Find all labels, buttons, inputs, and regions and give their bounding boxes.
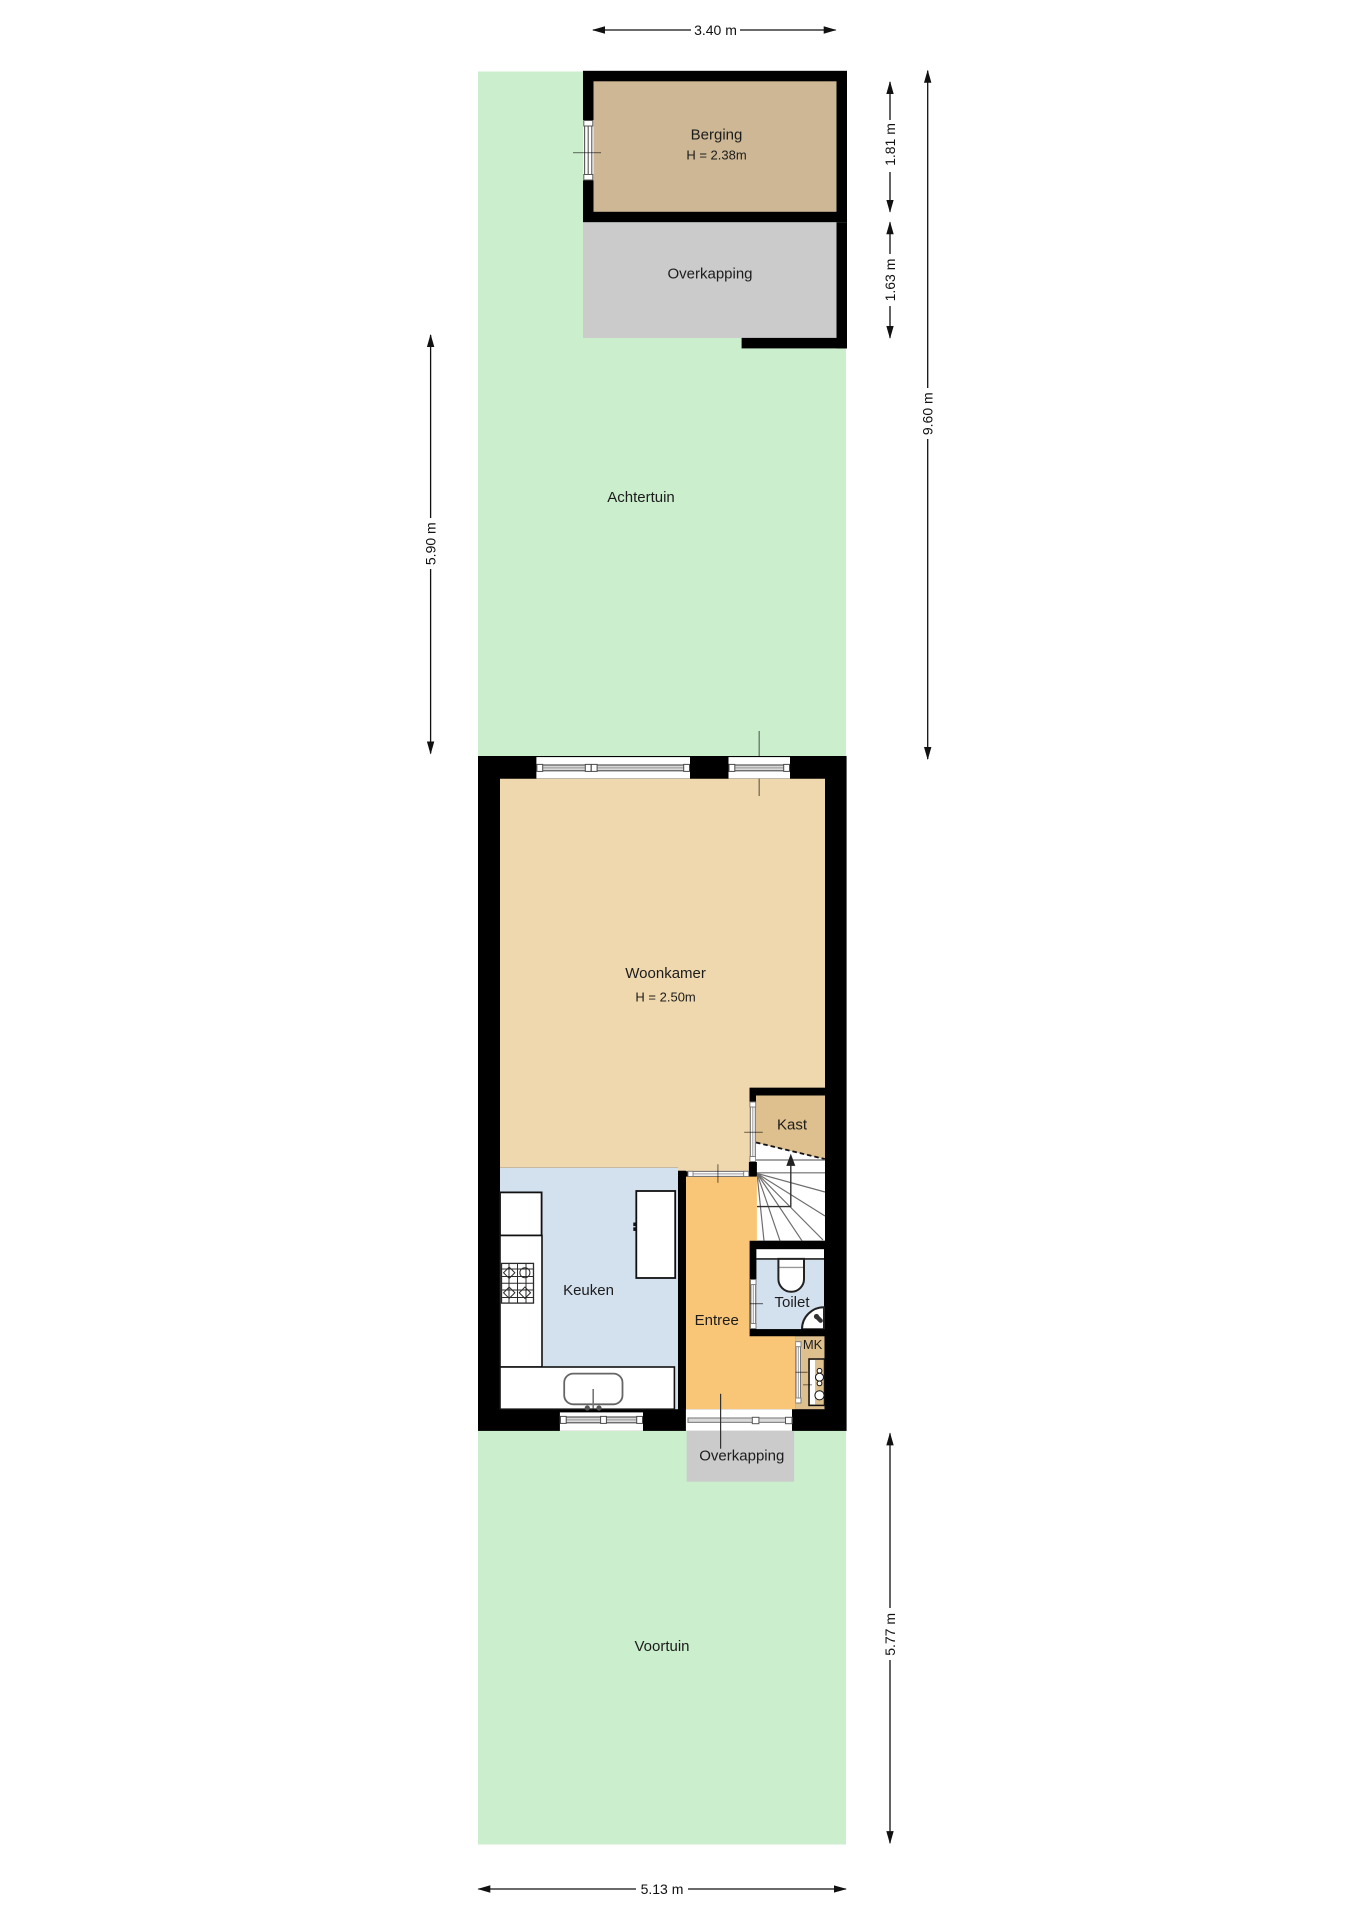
- svg-text:Keuken: Keuken: [563, 1282, 614, 1299]
- svg-text:MK: MK: [803, 1337, 823, 1352]
- svg-text:Voortuin: Voortuin: [634, 1638, 689, 1655]
- svg-text:Woonkamer: Woonkamer: [625, 965, 706, 982]
- svg-text:Kast: Kast: [777, 1117, 808, 1134]
- svg-text:5.90 m: 5.90 m: [423, 522, 439, 565]
- svg-text:H = 2.50m: H = 2.50m: [635, 990, 695, 1005]
- svg-text:Achtertuin: Achtertuin: [607, 489, 675, 506]
- svg-text:H = 2.38m: H = 2.38m: [686, 148, 746, 163]
- svg-text:1.81 m: 1.81 m: [882, 123, 898, 166]
- svg-text:Overkapping: Overkapping: [667, 266, 752, 283]
- svg-text:9.60 m: 9.60 m: [920, 392, 936, 435]
- svg-text:3.40 m: 3.40 m: [694, 22, 737, 38]
- svg-text:5.13 m: 5.13 m: [641, 1881, 684, 1897]
- svg-text:1.63 m: 1.63 m: [882, 259, 898, 302]
- svg-text:Berging: Berging: [691, 127, 743, 144]
- svg-text:Toilet: Toilet: [774, 1294, 810, 1311]
- svg-text:5.77 m: 5.77 m: [882, 1613, 898, 1656]
- svg-text:Overkapping: Overkapping: [699, 1448, 784, 1465]
- svg-text:Entree: Entree: [695, 1312, 739, 1329]
